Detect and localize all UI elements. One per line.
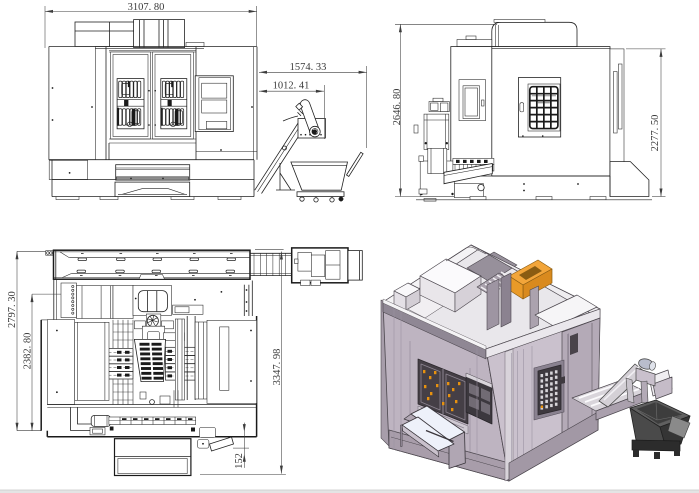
svg-text:3347. 98: 3347. 98 <box>272 349 283 386</box>
svg-text:1012. 41: 1012. 41 <box>273 81 310 92</box>
svg-text:1574. 33: 1574. 33 <box>290 62 327 73</box>
svg-text:2382. 80: 2382. 80 <box>23 333 34 370</box>
svg-text:3107. 80: 3107. 80 <box>128 2 165 13</box>
svg-text:2646. 80: 2646. 80 <box>392 89 403 126</box>
svg-text:2797. 30: 2797. 30 <box>7 291 18 328</box>
svg-text:2277. 50: 2277. 50 <box>650 115 661 152</box>
svg-text:152: 152 <box>234 453 245 469</box>
